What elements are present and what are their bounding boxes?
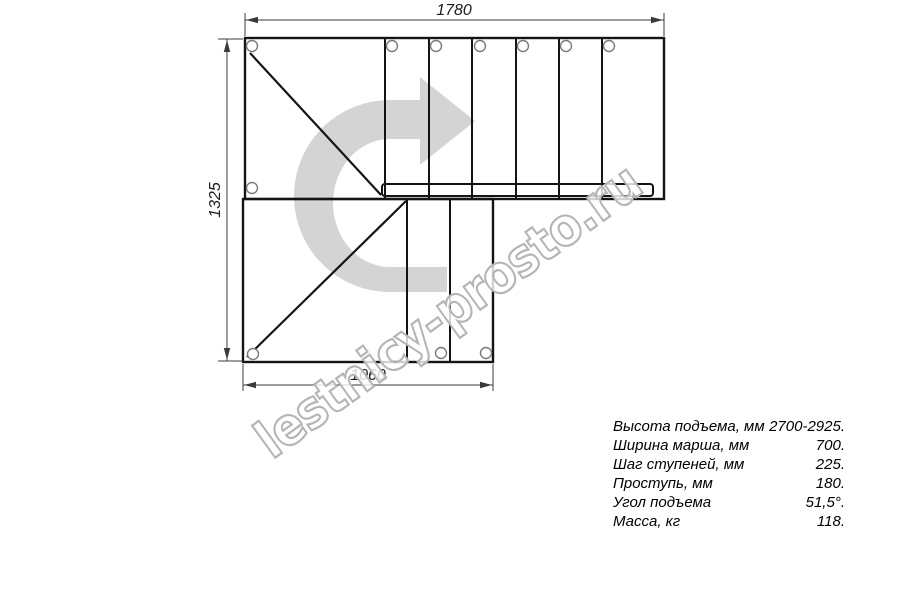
dim-left-value: 1325 xyxy=(207,182,224,218)
screw-hole xyxy=(604,41,615,52)
spec-row: Высота подъема, мм 2700-2925. xyxy=(613,417,845,436)
dim-arrowhead xyxy=(246,17,258,23)
spec-label: Шаг ступеней, мм xyxy=(613,455,744,474)
spec-label: Проступь, мм xyxy=(613,474,713,493)
dim-top-value: 1780 xyxy=(436,2,472,19)
spec-row: Масса, кг 118. xyxy=(613,512,845,531)
spec-label: Угол подъема xyxy=(613,493,711,512)
screw-hole xyxy=(561,41,572,52)
spec-row: Проступь, мм 180. xyxy=(613,474,845,493)
screw-hole xyxy=(247,41,258,52)
dim-arrowhead xyxy=(244,382,256,388)
spec-table: Высота подъема, мм 2700-2925. Ширина мар… xyxy=(613,417,845,531)
spec-value: 700. xyxy=(816,436,845,455)
spec-label: Ширина марша, мм xyxy=(613,436,749,455)
spec-value: 118. xyxy=(817,512,845,531)
spec-row: Угол подъема 51,5°. xyxy=(613,493,845,512)
screw-hole xyxy=(431,41,442,52)
screw-hole xyxy=(518,41,529,52)
screw-hole xyxy=(475,41,486,52)
spec-row: Ширина марша, мм 700. xyxy=(613,436,845,455)
spec-value: 51,5°. xyxy=(806,493,845,512)
screw-hole xyxy=(247,183,258,194)
dim-arrowhead xyxy=(224,40,230,52)
spec-label: Высота подъема, мм xyxy=(613,417,765,436)
staircase-drawing-page: 1780 1325 1060 lestnicy-prosto.ru Высота… xyxy=(0,0,900,600)
spec-label: Масса, кг xyxy=(613,512,680,531)
screw-hole xyxy=(248,349,259,360)
spec-row: Шаг ступеней, мм 225. xyxy=(613,455,845,474)
screw-hole xyxy=(481,348,492,359)
dim-arrowhead xyxy=(651,17,663,23)
spec-value: 2700-2925. xyxy=(769,417,845,436)
screw-hole xyxy=(387,41,398,52)
spec-value: 180. xyxy=(816,474,845,493)
spec-value: 225. xyxy=(816,455,845,474)
dim-arrowhead xyxy=(480,382,492,388)
dim-arrowhead xyxy=(224,348,230,360)
